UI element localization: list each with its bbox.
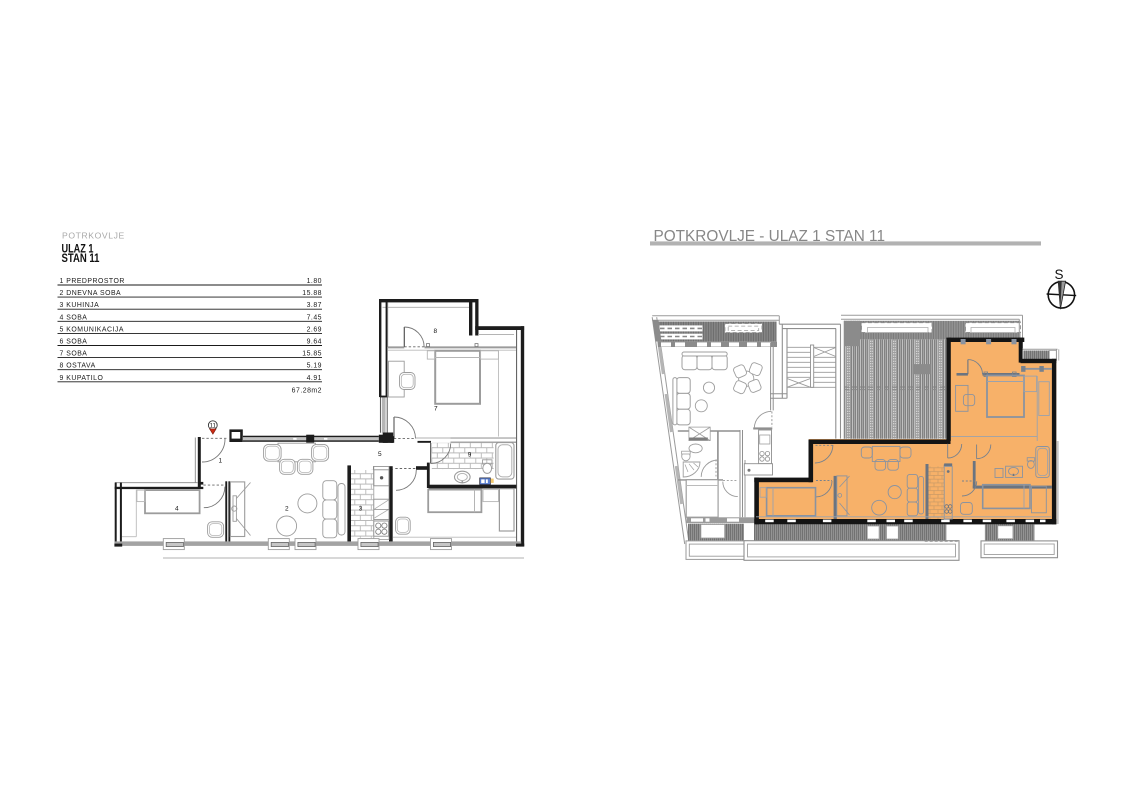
svg-text:7: 7 <box>434 406 438 413</box>
svg-text:3.87: 3.87 <box>307 302 322 309</box>
svg-text:3 KUHINJA: 3 KUHINJA <box>60 302 100 309</box>
svg-text:67.28m2: 67.28m2 <box>292 388 322 395</box>
svg-text:2 DNEVNA SOBA: 2 DNEVNA SOBA <box>60 290 122 297</box>
svg-text:6 SOBA: 6 SOBA <box>60 339 88 346</box>
svg-text:7 SOBA: 7 SOBA <box>60 351 88 358</box>
svg-text:5 KOMUNIKACIJA: 5 KOMUNIKACIJA <box>60 326 124 333</box>
svg-text:8 OSTAVA: 8 OSTAVA <box>60 363 96 370</box>
svg-text:2: 2 <box>285 506 289 513</box>
svg-text:3: 3 <box>359 506 363 513</box>
svg-text:5.19: 5.19 <box>307 363 322 370</box>
svg-text:STAN 11: STAN 11 <box>62 251 100 265</box>
svg-text:POTRKOVLJE: POTRKOVLJE <box>62 231 125 241</box>
svg-text:4: 4 <box>175 506 179 513</box>
svg-text:11: 11 <box>210 423 217 430</box>
svg-text:8: 8 <box>434 328 438 335</box>
svg-text:9: 9 <box>468 451 472 458</box>
svg-text:15.85: 15.85 <box>302 351 322 358</box>
svg-text:9.64: 9.64 <box>307 339 322 346</box>
svg-text:S: S <box>1055 267 1064 282</box>
svg-text:1: 1 <box>219 458 223 465</box>
svg-text:1.80: 1.80 <box>307 278 322 285</box>
svg-text:9 KUPATILO: 9 KUPATILO <box>60 375 104 382</box>
svg-text:1 PREDPROSTOR: 1 PREDPROSTOR <box>60 278 125 285</box>
svg-text:7.45: 7.45 <box>307 314 322 321</box>
svg-text:4 SOBA: 4 SOBA <box>60 314 88 321</box>
svg-text:15.88: 15.88 <box>302 290 322 297</box>
svg-text:5: 5 <box>378 451 382 458</box>
svg-text:2.69: 2.69 <box>307 326 322 333</box>
svg-text:4.91: 4.91 <box>307 375 322 382</box>
